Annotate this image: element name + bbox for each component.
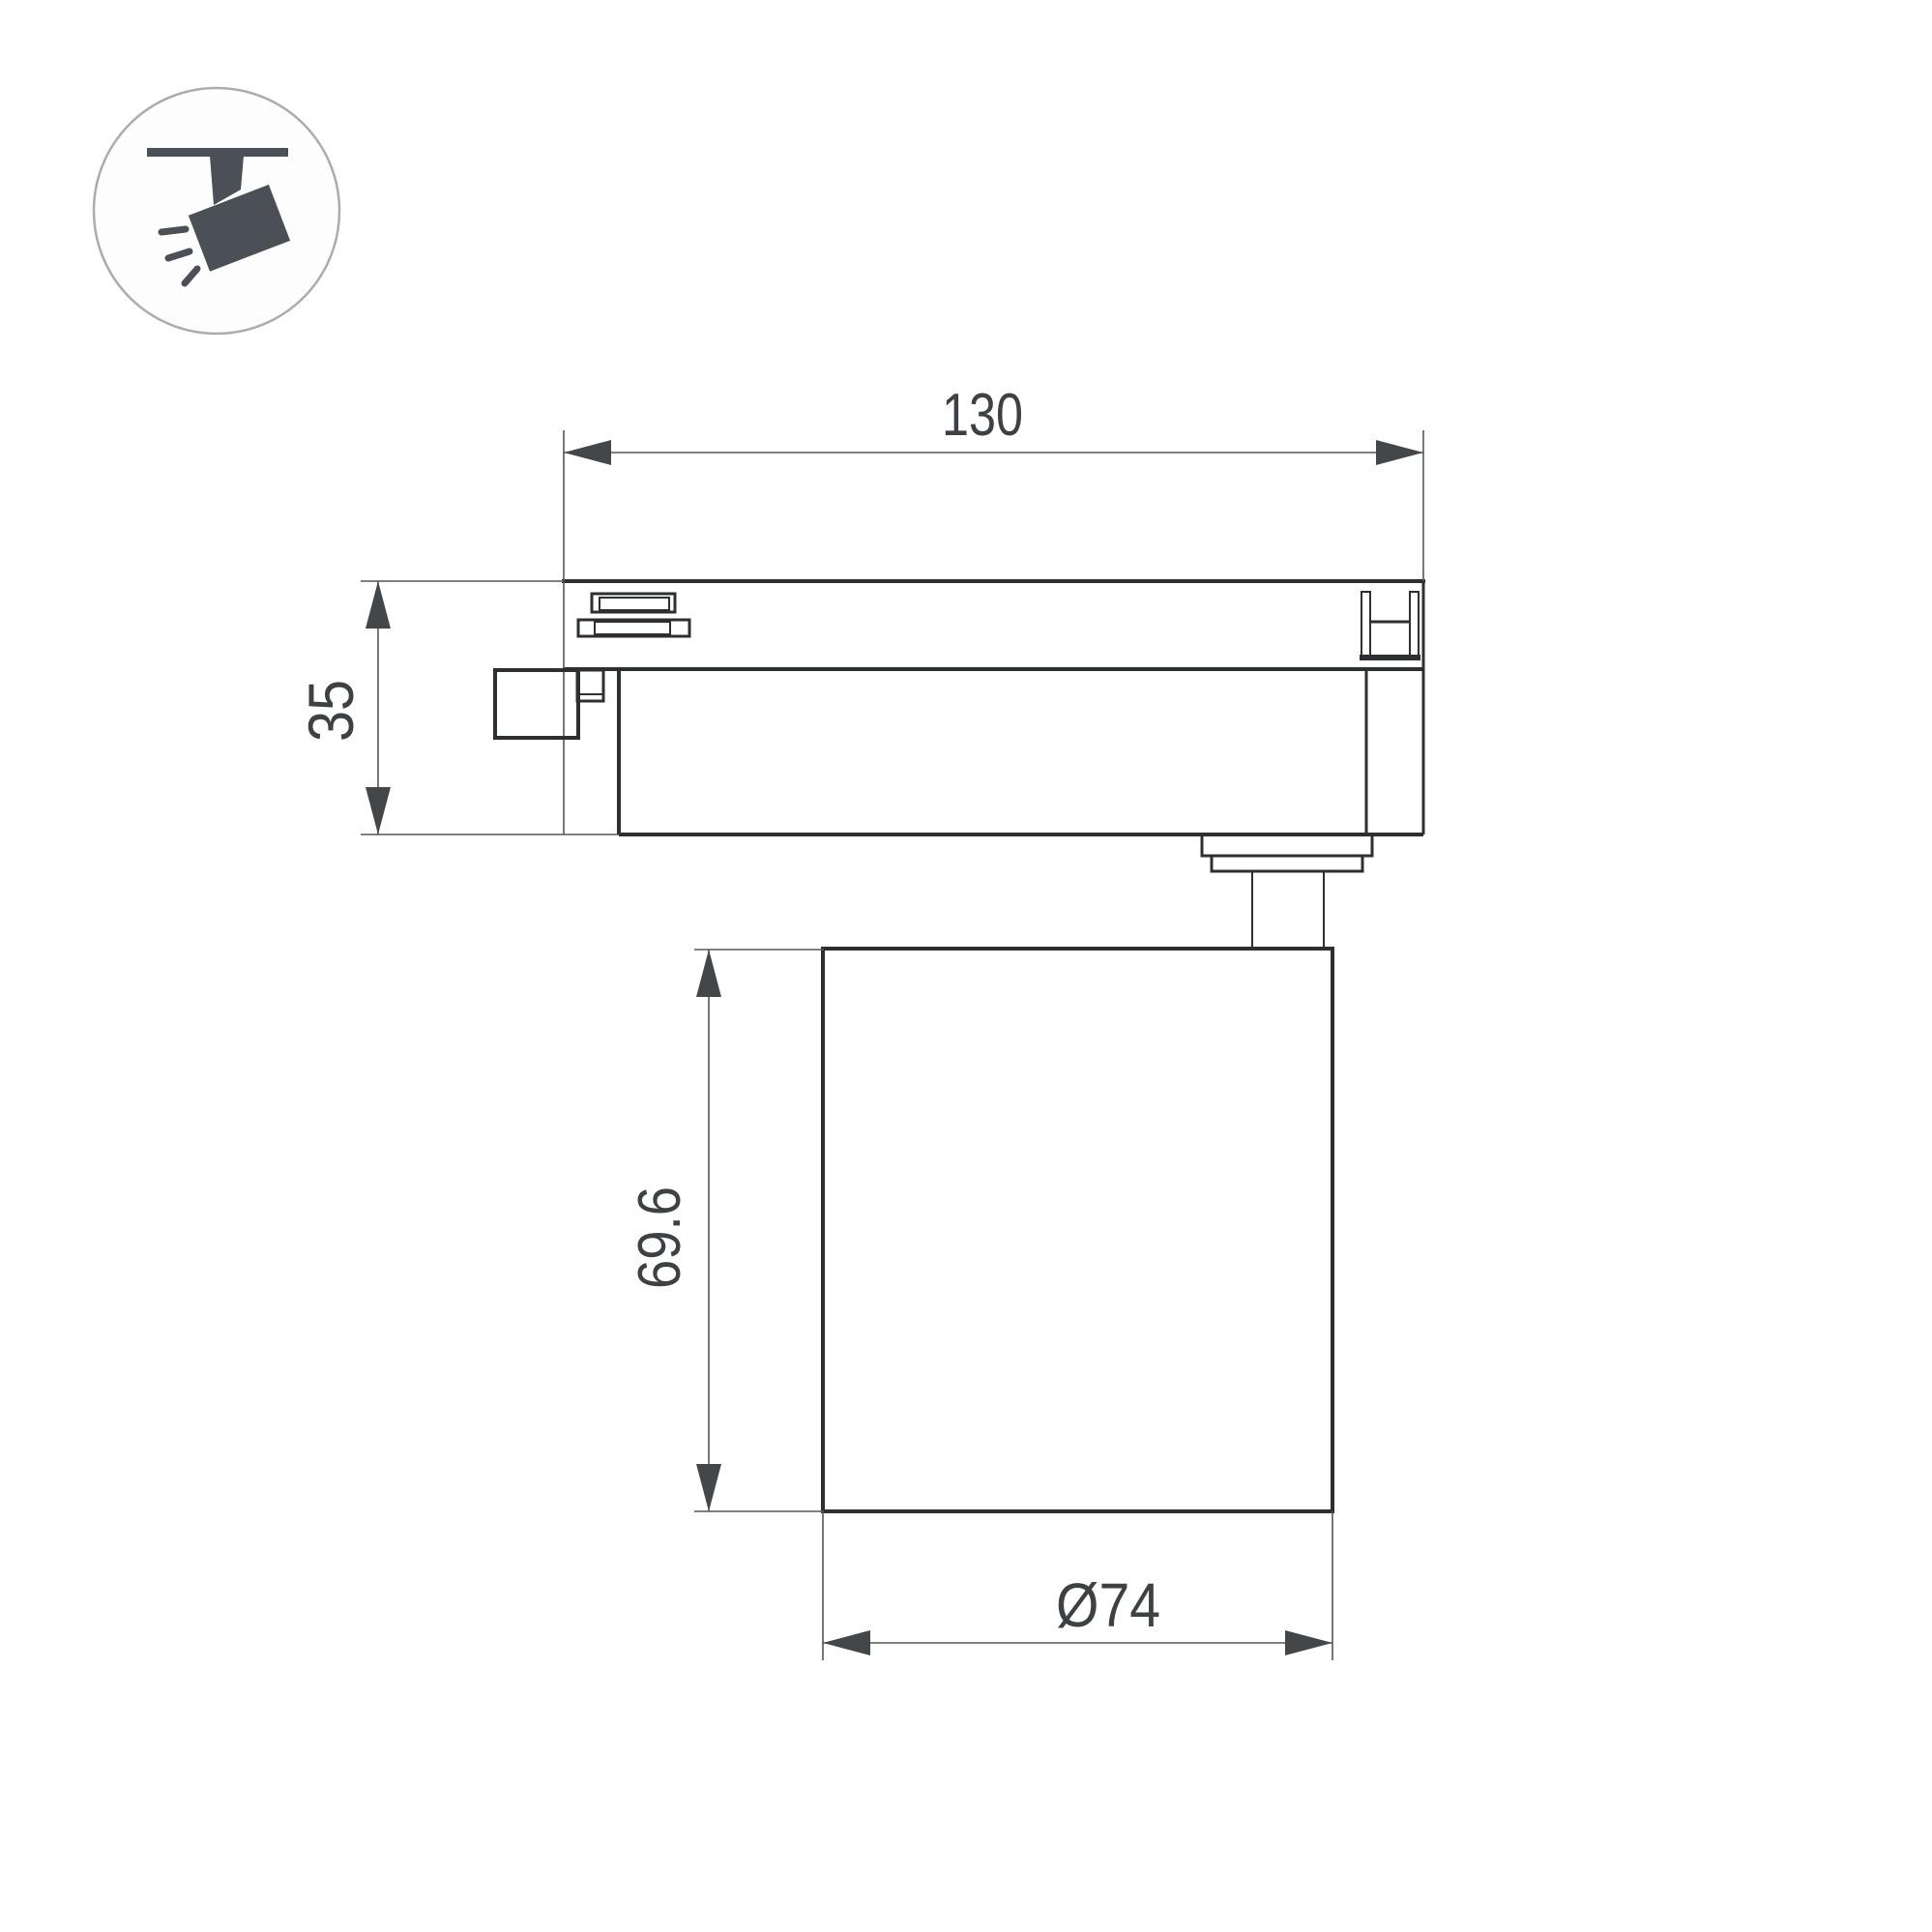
locking-lever — [495, 670, 603, 738]
swivel-joint — [1202, 834, 1372, 949]
dimension-track-width-label: 130 — [942, 382, 1023, 449]
dimension-body-diameter: Ø74 — [823, 1511, 1332, 1660]
clamp-hook — [1360, 592, 1420, 659]
dimension-body-height: 69.6 — [627, 950, 824, 1511]
drawing-canvas: 130 35 69.6 Ø74 — [0, 0, 1932, 1932]
dimension-body-diameter-label: Ø74 — [1056, 1570, 1160, 1640]
dimension-track-width: 130 — [564, 382, 1423, 581]
icon-track-bar — [147, 148, 288, 157]
dimension-adapter-height: 35 — [295, 581, 619, 834]
dimension-body-height-label: 69.6 — [627, 1186, 693, 1289]
contact-clip-lower — [578, 620, 689, 636]
dimension-adapter-height-label: 35 — [295, 680, 366, 742]
track-spotlight-icon — [94, 88, 339, 334]
contact-clip-upper — [592, 594, 675, 612]
track-adapter-outline — [495, 581, 1425, 949]
lamp-body-outline — [823, 949, 1332, 1511]
